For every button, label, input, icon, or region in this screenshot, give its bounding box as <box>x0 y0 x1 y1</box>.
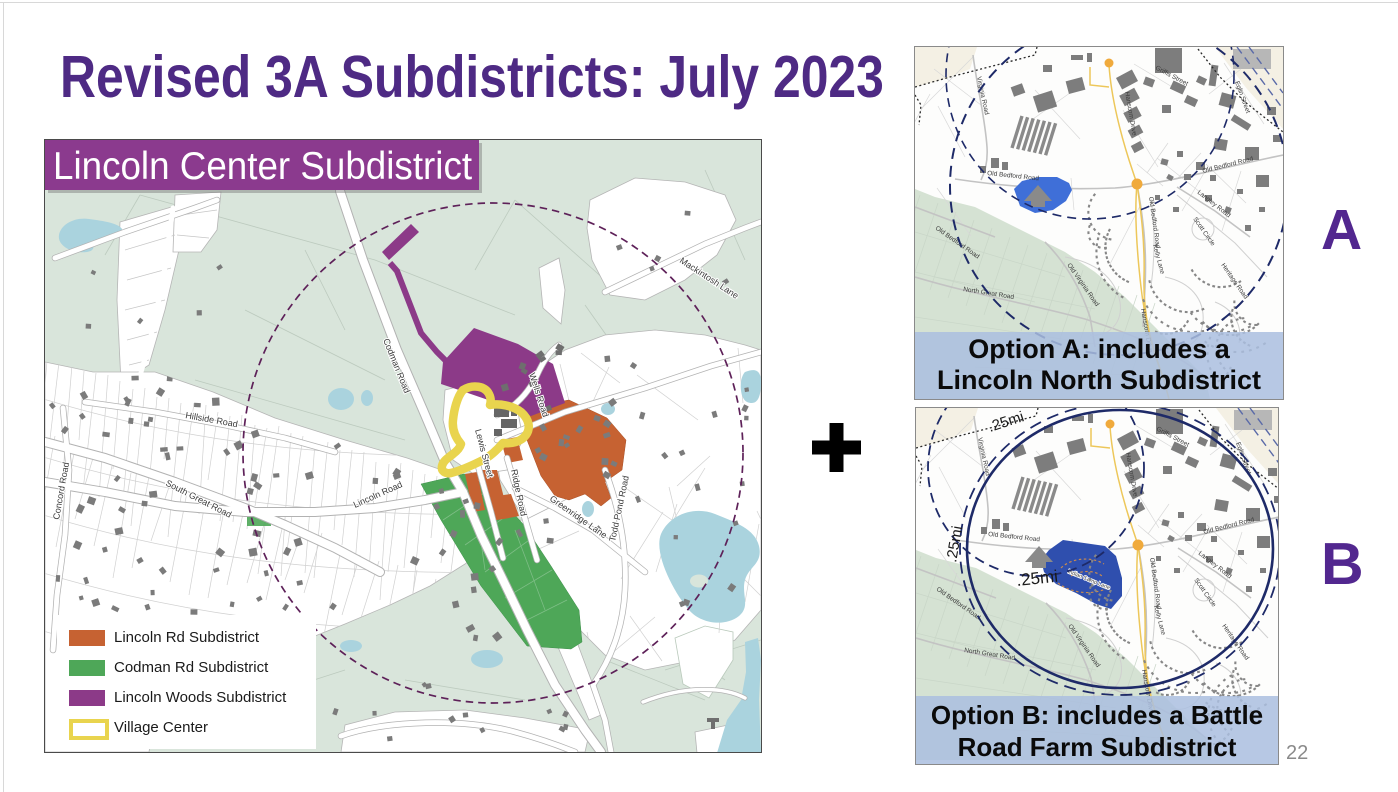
svg-text:Road Farm Subdistrict: Road Farm Subdistrict <box>958 732 1237 762</box>
svg-text:Option B: includes a Battle: Option B: includes a Battle <box>931 700 1263 730</box>
svg-text:Option A: includes a: Option A: includes a <box>968 334 1230 364</box>
svg-text:Lincoln North Subdistrict: Lincoln North Subdistrict <box>937 365 1261 395</box>
